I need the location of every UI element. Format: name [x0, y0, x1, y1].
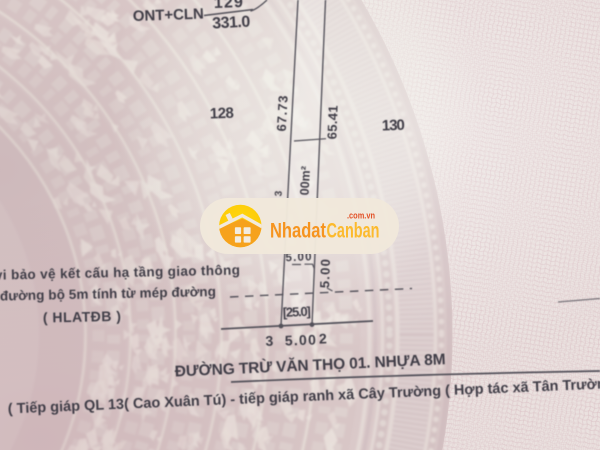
svg-text:129: 129 [214, 0, 244, 12]
svg-text:130: 130 [382, 117, 406, 135]
svg-text:ONT+CLN: ONT+CLN [133, 6, 205, 25]
svg-text:.com.vn: .com.vn [347, 211, 375, 222]
svg-text:3: 3 [274, 190, 285, 197]
svg-text:3: 3 [265, 333, 274, 349]
svg-text:67.73: 67.73 [274, 95, 291, 132]
svg-text:Nhadat: Nhadat [270, 220, 326, 243]
svg-text:( HLATĐB ): ( HLATĐB ) [43, 308, 121, 326]
svg-text:331.0: 331.0 [212, 13, 251, 32]
svg-text:5.00: 5.00 [285, 331, 317, 348]
svg-text:5.00: 5.00 [317, 259, 333, 289]
svg-text:128: 128 [210, 105, 235, 123]
svg-text:00m²: 00m² [298, 166, 314, 196]
svg-text:65.41: 65.41 [324, 105, 340, 140]
svg-text:[25.0]: [25.0] [283, 304, 312, 320]
svg-text:2: 2 [319, 330, 328, 346]
svg-text:Canban: Canban [327, 220, 380, 243]
